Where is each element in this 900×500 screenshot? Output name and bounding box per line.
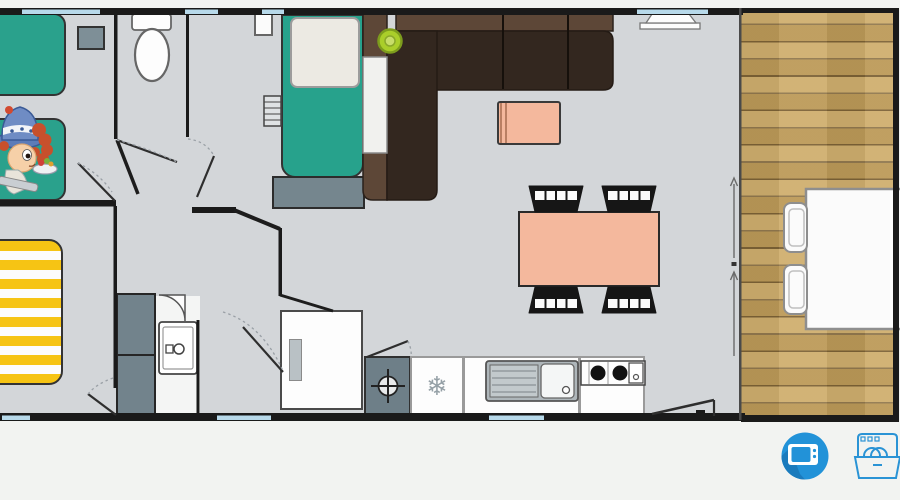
twin-bed-2	[0, 118, 66, 201]
shower-room-floor	[156, 296, 200, 414]
twin-bed-1	[0, 13, 66, 96]
floorplan-canvas: ❄	[0, 0, 900, 500]
fridge-unit	[410, 356, 464, 416]
sink-counter	[463, 356, 580, 416]
wardrobe	[116, 293, 156, 419]
bed-pillow	[290, 17, 360, 88]
double-bed-yellow	[0, 239, 63, 385]
nightstand-gray	[77, 26, 105, 50]
amenity-tv	[782, 433, 829, 480]
bed-foot-bench	[272, 176, 365, 209]
nightstand-white	[254, 13, 273, 36]
amenity-dishwasher	[855, 434, 900, 478]
dining-table	[518, 211, 660, 287]
dishwasher-icon	[858, 434, 897, 456]
terrace-deck	[741, 8, 893, 420]
water-heater-unit	[364, 356, 411, 416]
cabinet-handle	[289, 339, 302, 381]
coffee-table	[497, 101, 561, 145]
stove-counter	[579, 356, 645, 416]
tv-icon	[782, 433, 829, 480]
